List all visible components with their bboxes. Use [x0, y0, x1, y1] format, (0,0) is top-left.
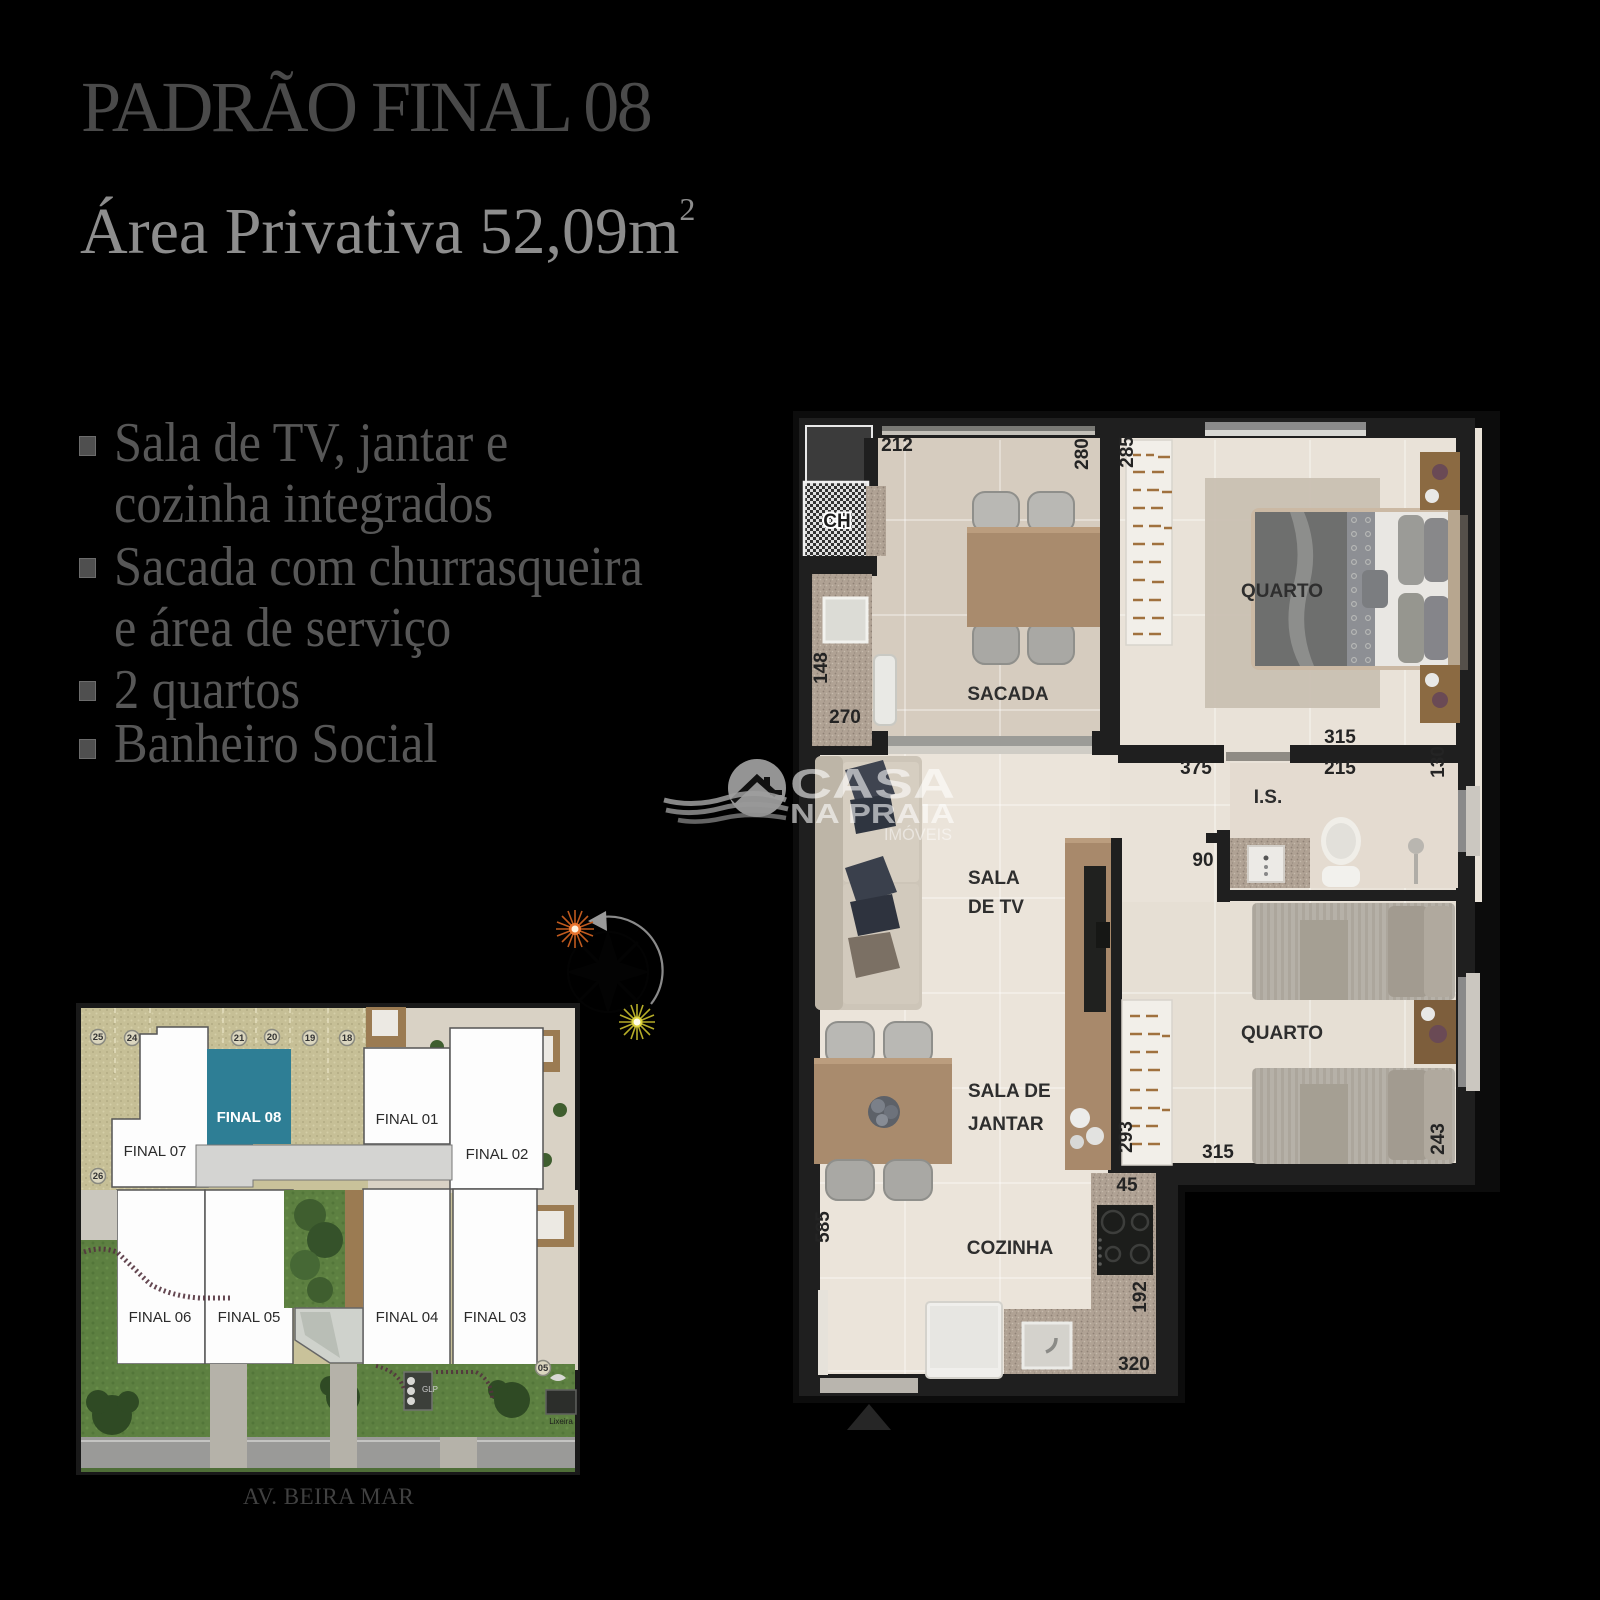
svg-text:I.S.: I.S. [1254, 787, 1283, 808]
svg-text:Lixeira: Lixeira [549, 1417, 573, 1426]
svg-text:FINAL 05: FINAL 05 [218, 1309, 281, 1326]
svg-text:JANTAR: JANTAR [968, 1114, 1044, 1135]
svg-text:585: 585 [813, 1211, 834, 1243]
svg-text:19: 19 [305, 1033, 316, 1044]
svg-text:45: 45 [1116, 1175, 1138, 1196]
svg-text:GLP: GLP [422, 1385, 438, 1394]
svg-text:FINAL 01: FINAL 01 [376, 1111, 439, 1128]
svg-text:FINAL 08: FINAL 08 [217, 1109, 282, 1126]
svg-text:212: 212 [881, 435, 913, 456]
svg-text:IMÓVEIS: IMÓVEIS [884, 825, 952, 844]
svg-text:90: 90 [1192, 850, 1213, 871]
svg-text:26: 26 [93, 1171, 104, 1182]
svg-text:FINAL 07: FINAL 07 [124, 1143, 187, 1160]
svg-text:DE TV: DE TV [968, 897, 1024, 918]
svg-text:21: 21 [234, 1033, 245, 1044]
svg-text:18: 18 [342, 1033, 353, 1044]
svg-text:130: 130 [1428, 746, 1449, 778]
svg-text:FINAL 02: FINAL 02 [466, 1146, 529, 1163]
svg-text:QUARTO: QUARTO [1241, 581, 1323, 602]
svg-text:270: 270 [829, 707, 861, 728]
svg-text:148: 148 [811, 652, 832, 684]
svg-text:05: 05 [538, 1363, 549, 1374]
svg-text:20: 20 [267, 1032, 278, 1043]
svg-text:SACADA: SACADA [967, 684, 1049, 705]
svg-text:315: 315 [1324, 727, 1356, 748]
svg-text:375: 375 [1180, 758, 1212, 779]
svg-text:293: 293 [1116, 1121, 1137, 1153]
svg-text:SALA: SALA [968, 868, 1020, 889]
svg-text:FINAL 03: FINAL 03 [464, 1309, 527, 1326]
svg-text:320: 320 [1118, 1354, 1150, 1375]
svg-text:315: 315 [1202, 1142, 1234, 1163]
svg-text:192: 192 [1130, 1281, 1151, 1313]
svg-text:24: 24 [127, 1033, 138, 1044]
svg-text:QUARTO: QUARTO [1241, 1023, 1323, 1044]
svg-text:CH: CH [823, 511, 850, 532]
svg-text:25: 25 [93, 1032, 104, 1043]
svg-text:FINAL 06: FINAL 06 [129, 1309, 192, 1326]
svg-text:243: 243 [1428, 1123, 1449, 1155]
svg-text:SALA DE: SALA DE [968, 1081, 1051, 1102]
svg-text:215: 215 [1324, 758, 1356, 779]
svg-text:285: 285 [1117, 436, 1138, 468]
svg-text:280: 280 [1072, 438, 1093, 470]
svg-text:FINAL 04: FINAL 04 [376, 1309, 439, 1326]
svg-text:COZINHA: COZINHA [967, 1238, 1054, 1259]
